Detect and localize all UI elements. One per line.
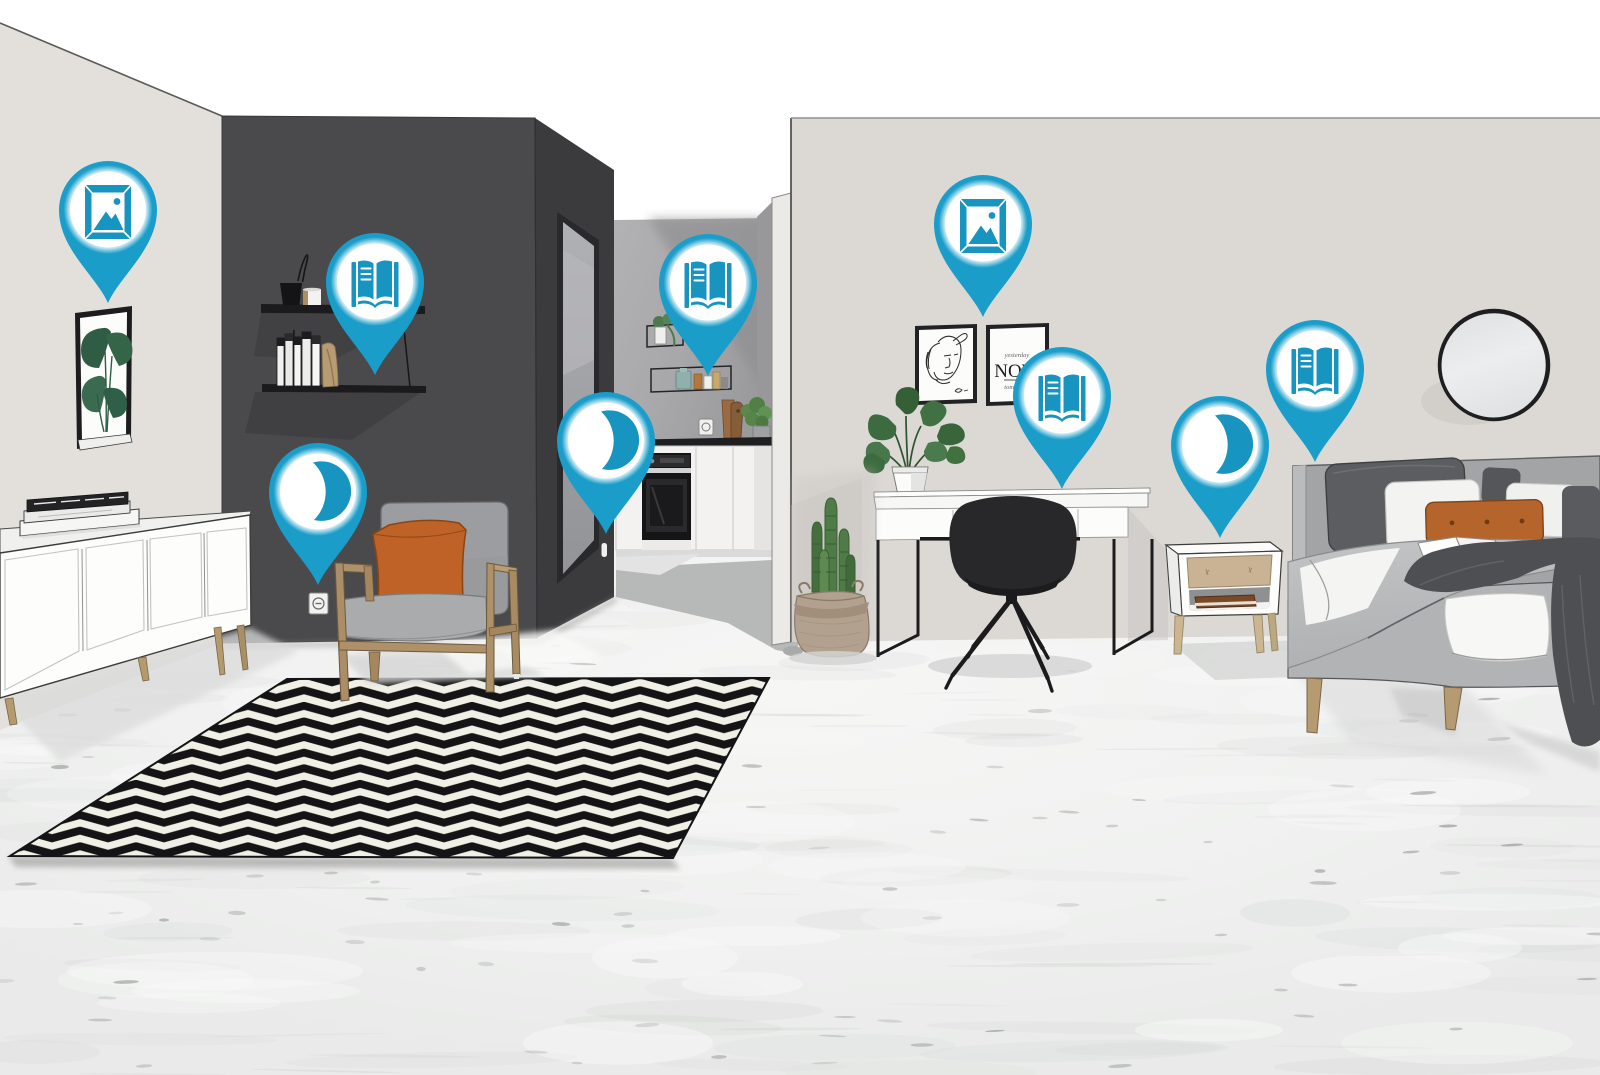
svg-text:yesterday: yesterday — [1004, 352, 1030, 359]
